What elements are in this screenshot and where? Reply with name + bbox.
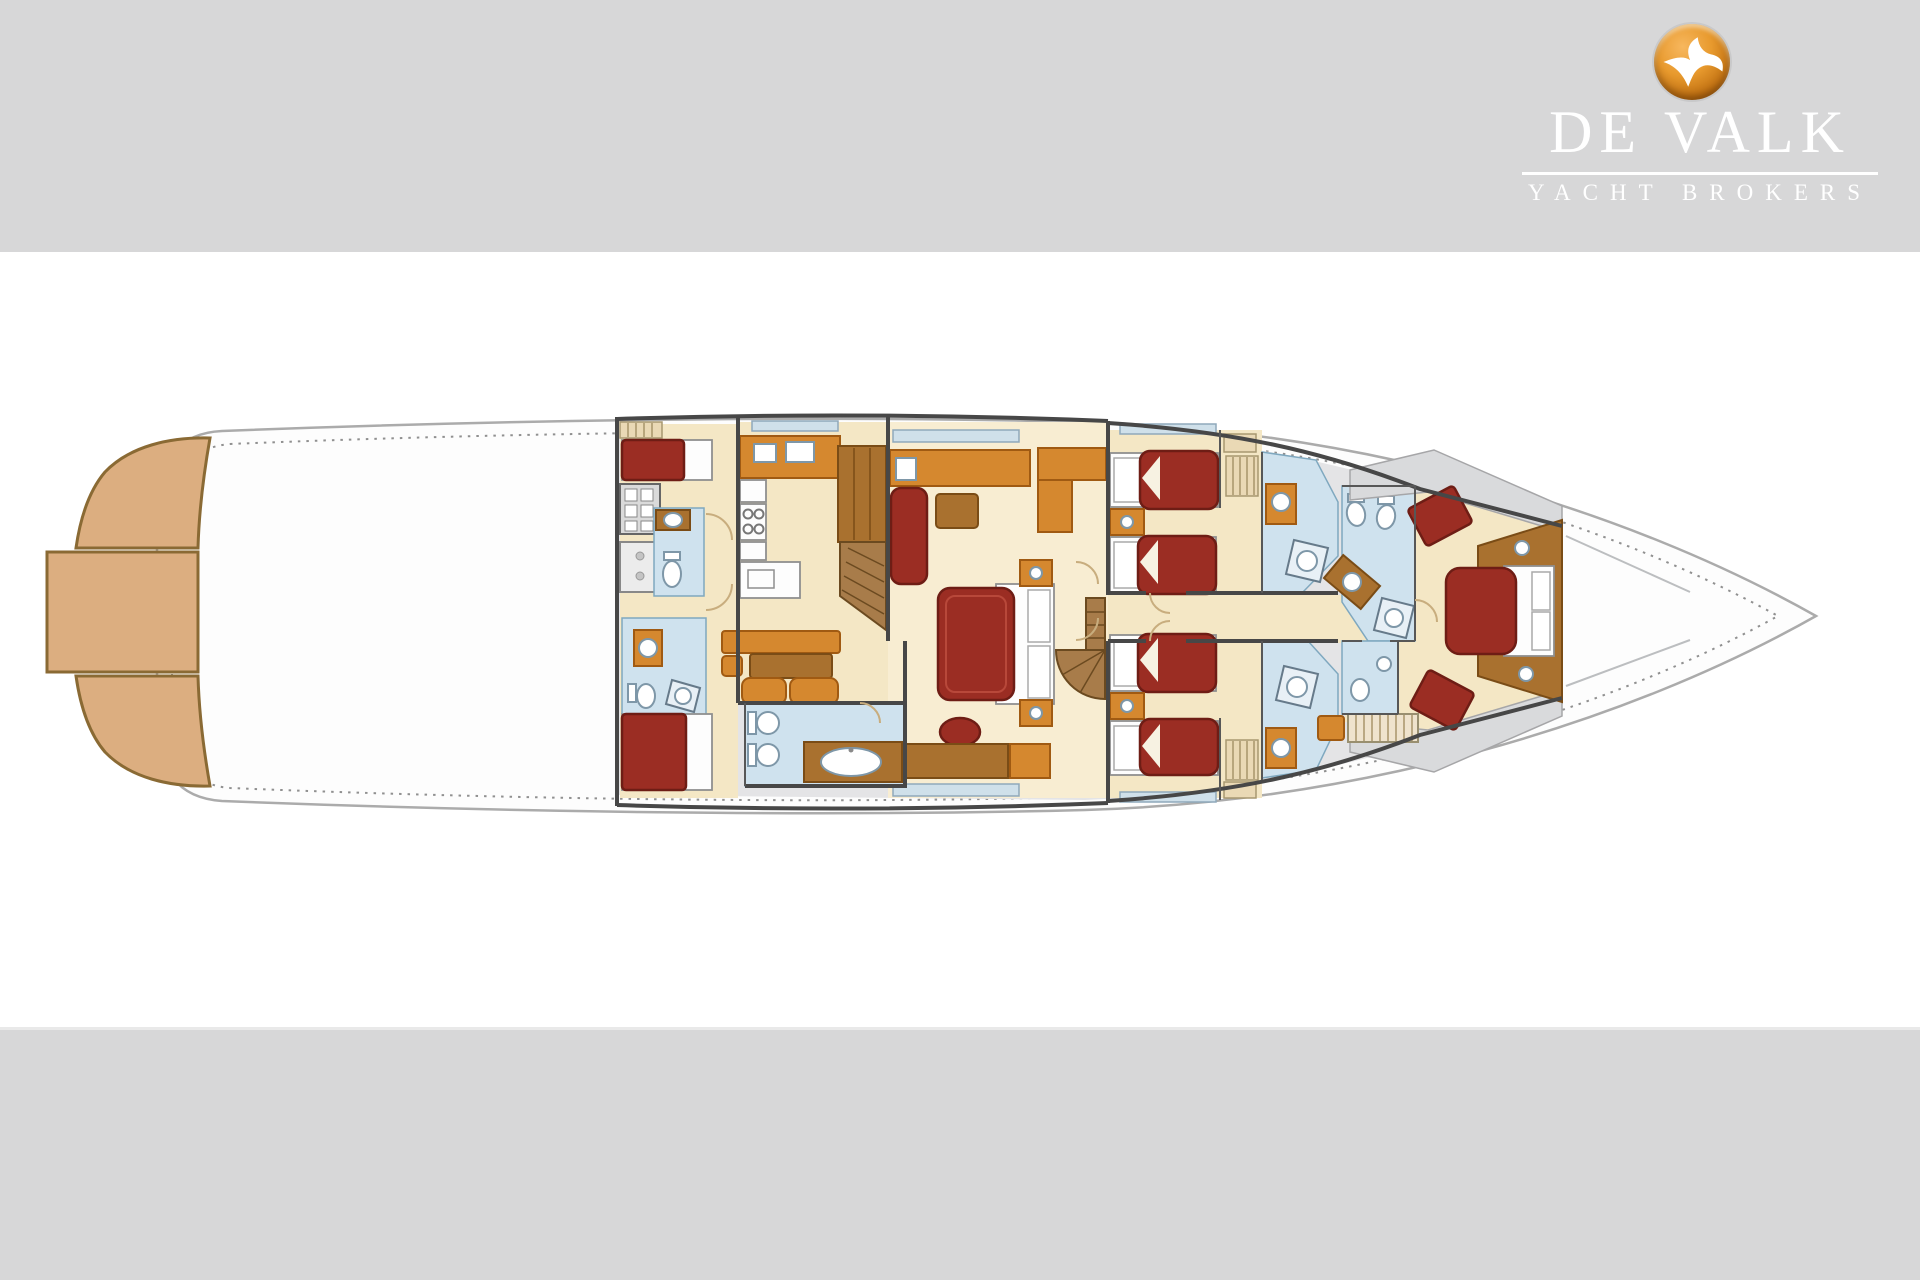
de-valk-logo: DE VALK YACHT BROKERS [1512, 0, 1888, 240]
stove [740, 504, 766, 540]
sink [1272, 739, 1290, 757]
pillow [1114, 726, 1140, 770]
pillow [1532, 572, 1550, 610]
toilet [1351, 679, 1369, 701]
pillow [1114, 640, 1140, 686]
lamp [1030, 567, 1042, 579]
shower-drain [675, 688, 691, 704]
platform-step-middle [47, 552, 198, 672]
lamp [1121, 700, 1133, 712]
pillow [1114, 458, 1140, 502]
window-strip [893, 784, 1019, 796]
cabinet-inset [896, 458, 916, 480]
crew-locker [620, 422, 662, 438]
yacht-floorplan-page: DE VALK YACHT BROKERS [0, 0, 1920, 1280]
master-wardrobe-side [1038, 480, 1072, 532]
ladder-handle [1318, 716, 1344, 740]
falcon-icon [1654, 24, 1730, 100]
shower-drain [1297, 551, 1317, 571]
bidet [757, 744, 779, 766]
master-stool [940, 718, 980, 746]
toilet-tank [628, 684, 636, 702]
pillow [1028, 590, 1050, 642]
window-strip [893, 430, 1019, 442]
toilet [663, 561, 681, 587]
toilet [637, 684, 655, 708]
galley-counter-inset [786, 442, 814, 462]
brand-rule [1522, 172, 1878, 175]
shower-drain [1385, 609, 1403, 627]
oven [740, 542, 766, 560]
day-head [745, 703, 905, 786]
stair-steps [1086, 598, 1105, 650]
crew-bed-aft [622, 440, 684, 480]
brand-name: DE VALK [1512, 98, 1888, 167]
platform-step-bottom [76, 676, 210, 786]
master-ottoman [936, 494, 978, 528]
porthole [1515, 541, 1529, 555]
swim-platform [47, 438, 210, 786]
lamp [1030, 707, 1042, 719]
platform-step-top [76, 438, 210, 548]
pillow [1532, 612, 1550, 650]
toilet-tank [748, 712, 756, 734]
master-wardrobe-top [1038, 448, 1106, 480]
toilet-tank [664, 552, 680, 560]
shower-drain [1287, 677, 1307, 697]
crew-bed-fwd [622, 714, 686, 790]
window-strip [752, 421, 838, 431]
pillow [1028, 646, 1050, 698]
porthole [1519, 667, 1533, 681]
logo-badge [1654, 24, 1730, 100]
dinette-table [750, 654, 832, 678]
sink [1272, 493, 1290, 511]
master-desk-end [1010, 744, 1050, 778]
dinette-chair [790, 678, 838, 704]
sink [664, 513, 682, 527]
master-bed-duvet [938, 588, 1014, 700]
master-desk [906, 744, 1008, 778]
sink-counter [740, 562, 800, 598]
vip-wc-floor [1342, 641, 1398, 714]
dinette-chair [742, 678, 786, 704]
sink [639, 639, 657, 657]
lamp [1121, 516, 1133, 528]
galley-sink [754, 444, 776, 462]
pantry [838, 446, 886, 542]
bidet-tank [748, 744, 756, 766]
toilet [757, 712, 779, 734]
sink [1377, 657, 1391, 671]
brand-tagline: YACHT BROKERS [1512, 180, 1888, 206]
master-sofa [891, 488, 927, 584]
vip-bed-duvet [1446, 568, 1516, 654]
pillow [1114, 542, 1140, 588]
fridge [740, 480, 766, 502]
